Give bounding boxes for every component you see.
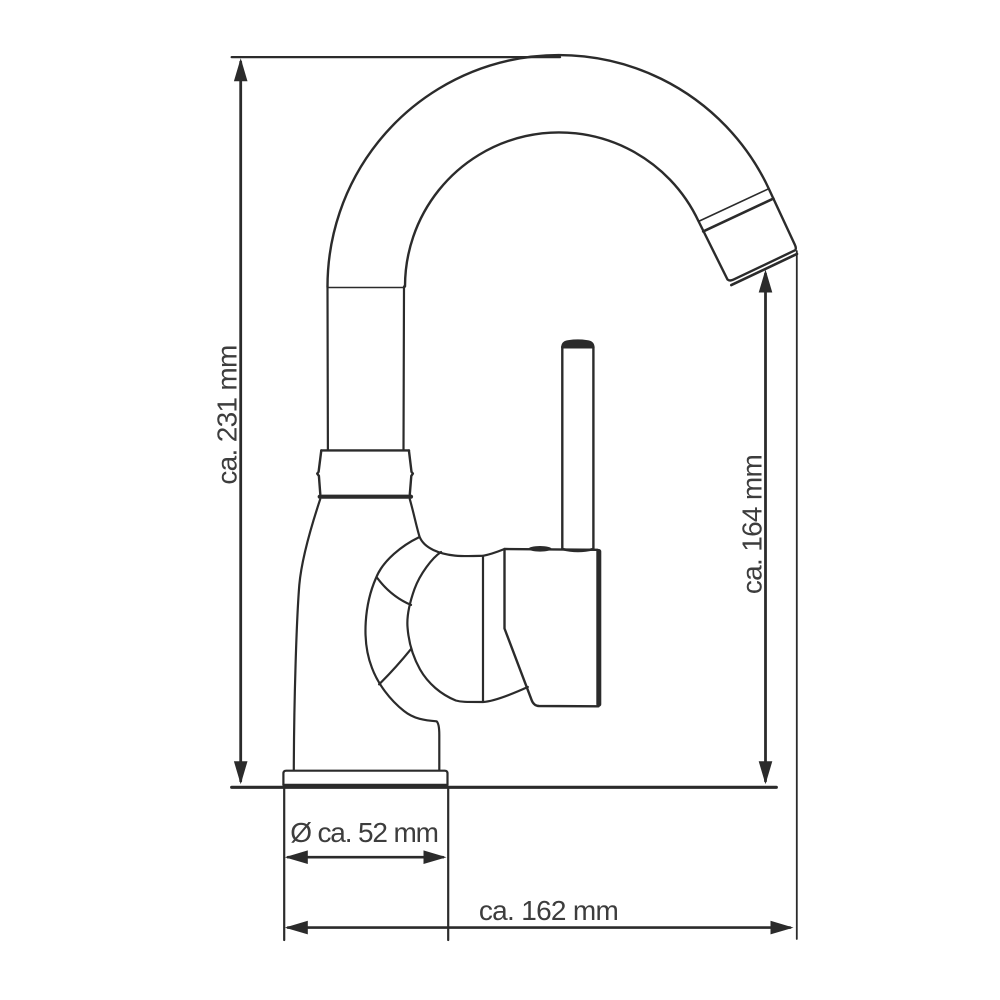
svg-text:ca. 231 mm: ca. 231 mm <box>212 345 243 484</box>
svg-text:ca. 164 mm: ca. 164 mm <box>737 455 768 594</box>
svg-text:Ø ca. 52 mm: Ø ca. 52 mm <box>290 817 438 848</box>
svg-text:ca. 162 mm: ca. 162 mm <box>479 895 618 926</box>
